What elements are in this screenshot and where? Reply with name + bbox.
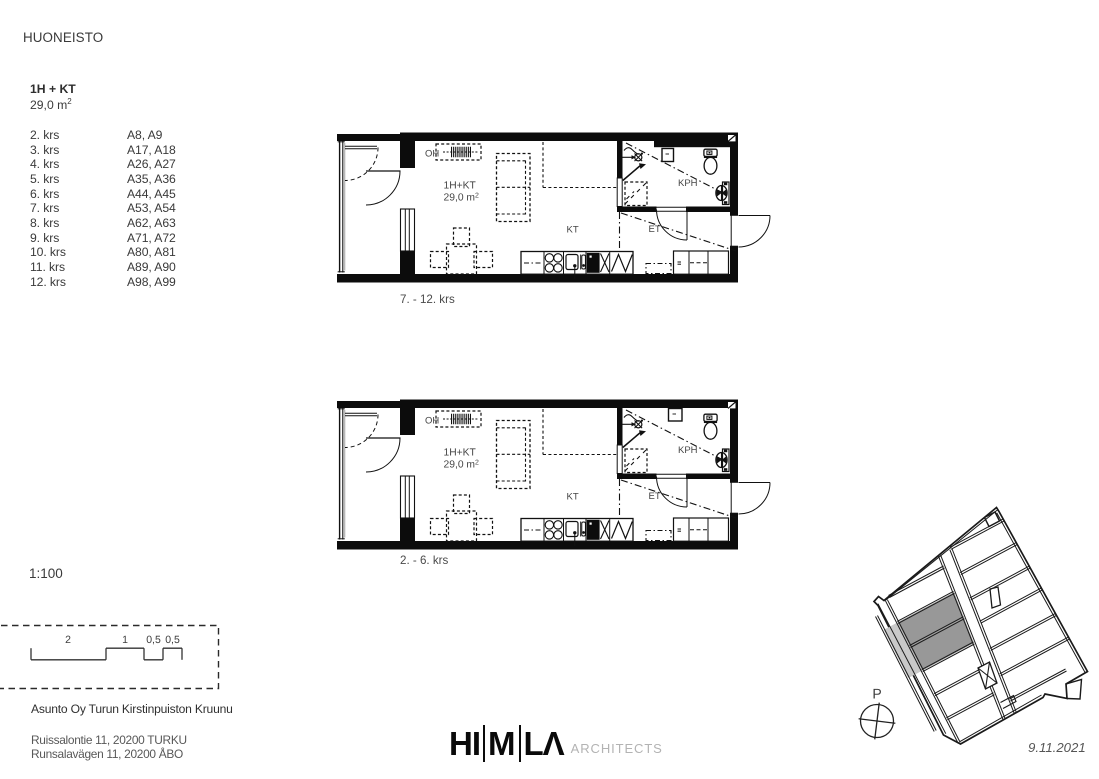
svg-text:1: 1 xyxy=(122,634,128,646)
svg-text:29,0 m2: 29,0 m2 xyxy=(444,193,479,204)
svg-text:KPH: KPH xyxy=(678,445,698,456)
svg-text:0,5: 0,5 xyxy=(146,634,161,646)
svg-text:KT: KT xyxy=(567,225,579,236)
svg-text:OH: OH xyxy=(425,416,439,427)
svg-text:OH: OH xyxy=(425,149,439,160)
svg-text:1H+KT: 1H+KT xyxy=(444,181,477,192)
svg-text:KPH: KPH xyxy=(678,178,698,189)
svg-text:ET: ET xyxy=(649,224,661,235)
svg-text:KT: KT xyxy=(567,492,579,503)
svg-text:1H+KT: 1H+KT xyxy=(444,448,477,459)
svg-text:P: P xyxy=(872,686,881,702)
svg-text:ET: ET xyxy=(649,491,661,502)
svg-text:29,0 m2: 29,0 m2 xyxy=(444,460,479,471)
svg-text:0,5: 0,5 xyxy=(165,634,180,646)
svg-text:2: 2 xyxy=(65,634,71,646)
